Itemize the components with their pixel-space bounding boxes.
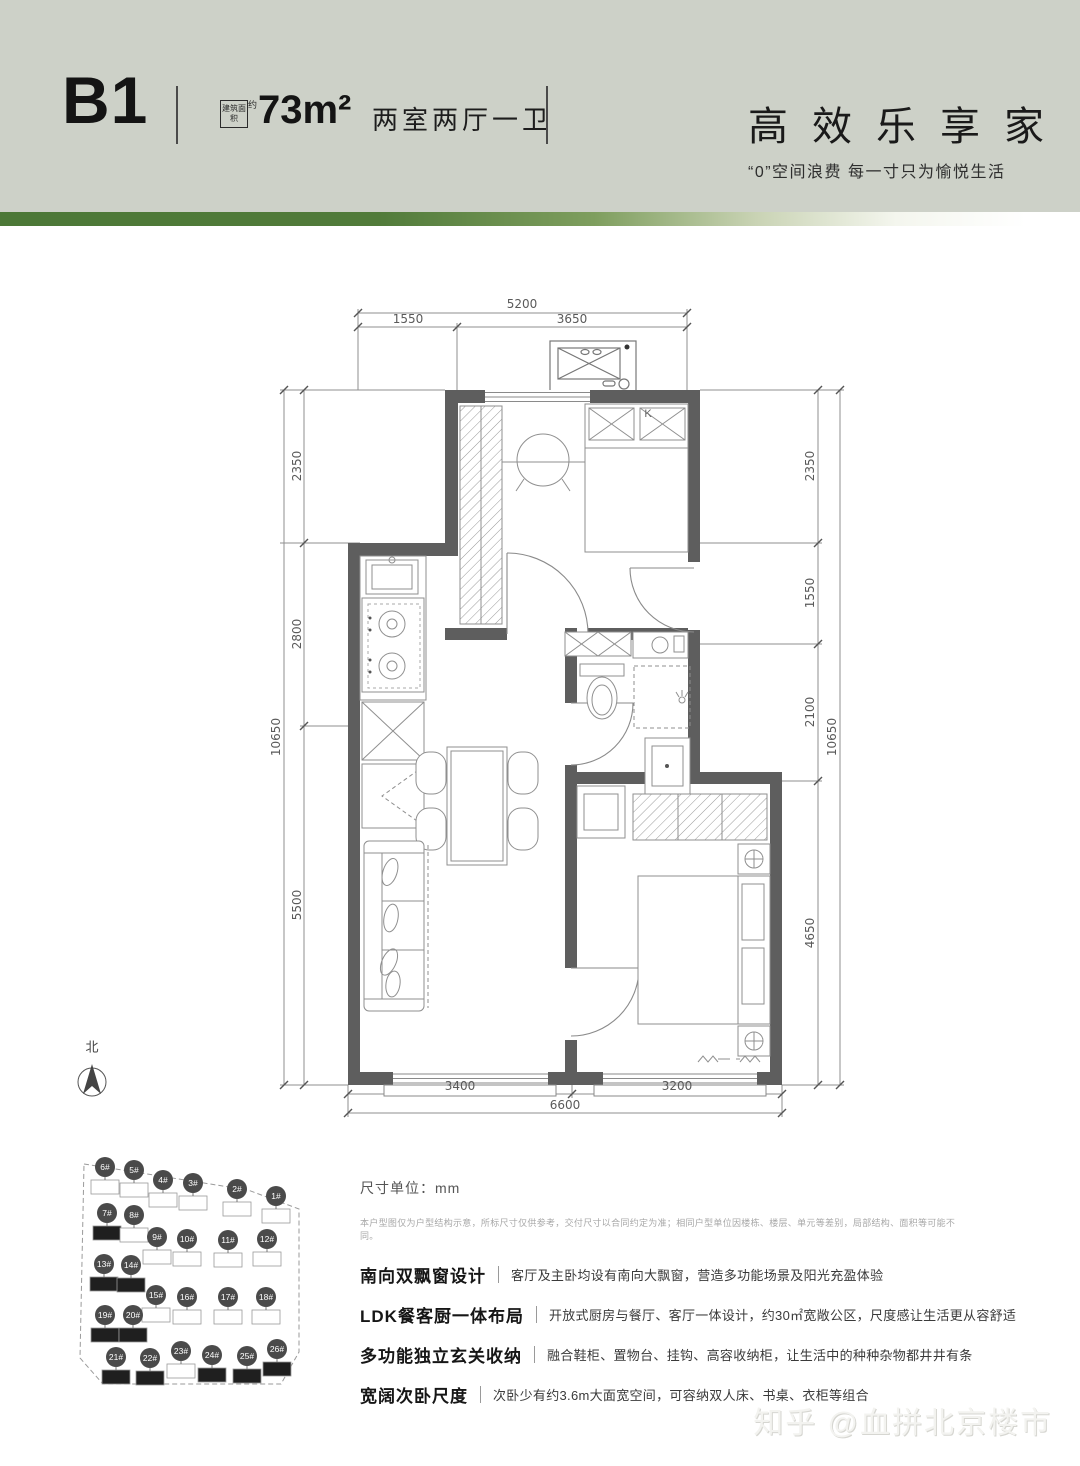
north-label: 北: [85, 1037, 98, 1056]
building-label: 11#: [221, 1235, 235, 1245]
ac-unit-label: K: [644, 408, 651, 420]
floor-plan-svg: 6#5#4#3#2#1#7#8#9#10#11#12#13#14#15#16#1…: [0, 0, 1080, 1466]
master-bedroom: [577, 786, 770, 1062]
building-footprint: [214, 1310, 242, 1324]
feature-desc: 客厅及主卧均设有南向大飘窗，营造多功能场景及阳光充盈体验: [511, 1265, 883, 1284]
feature-divider: [536, 1306, 537, 1323]
building-footprint: [102, 1370, 130, 1384]
page: { "header": { "unit_code": "B1", "area_t…: [0, 0, 1080, 1466]
unit-note: 尺寸单位：mm: [360, 1178, 460, 1198]
feature-divider: [480, 1386, 481, 1403]
disclaimer: 本户型图仅为户型结构示意，所标尺寸仅供参考，交付尺寸以合同约定为准；相同户型单位…: [360, 1216, 960, 1242]
dim-right-seg-2: 1550: [803, 578, 817, 609]
building-footprint: [262, 1209, 290, 1223]
dim-left-total: 10650: [269, 718, 283, 756]
dim-top-seg-1: 1550: [393, 312, 424, 326]
dim-top-total: 5200: [507, 297, 538, 311]
building-footprint: [119, 1328, 147, 1342]
feature-list: 南向双飘窗设计 客厅及主卧均设有南向大飘窗，营造多功能场景及阳光充盈体验 LDK…: [360, 1262, 1000, 1407]
site-plan: 6#5#4#3#2#1#7#8#9#10#11#12#13#14#15#16#1…: [80, 1157, 299, 1385]
building-label: 15#: [149, 1290, 163, 1300]
feature-divider: [534, 1346, 535, 1363]
bedroom2-furniture: [460, 404, 688, 624]
building-footprint: [173, 1252, 201, 1266]
building-footprint: [253, 1252, 281, 1266]
building-label: 1#: [271, 1191, 281, 1201]
feature-title: 南向双飘窗设计: [360, 1262, 486, 1287]
dim-right-seg-3: 2100: [803, 697, 817, 728]
building-label: 7#: [102, 1208, 112, 1218]
building-footprint: [90, 1277, 118, 1291]
building-footprint: [223, 1202, 251, 1216]
building-footprint: [91, 1328, 119, 1342]
building-label: 10#: [180, 1234, 194, 1244]
building-footprint: [179, 1196, 207, 1210]
dim-left-seg-3: 5500: [290, 890, 304, 921]
building-label: 8#: [129, 1210, 139, 1220]
building-label: 9#: [152, 1232, 162, 1242]
building-label: 14#: [124, 1260, 138, 1270]
building-label: 26#: [270, 1344, 284, 1354]
building-footprint: [173, 1310, 201, 1324]
ac-platform: [550, 341, 636, 391]
building-footprint: [91, 1180, 119, 1194]
building-label: 22#: [143, 1353, 157, 1363]
building-label: 18#: [259, 1292, 273, 1302]
building-label: 25#: [240, 1351, 254, 1361]
bathroom: [565, 632, 690, 794]
building-footprint: [117, 1278, 145, 1292]
building-footprint: [214, 1253, 242, 1267]
dim-bottom-seg-1: 3400: [445, 1079, 476, 1093]
building-label: 4#: [158, 1175, 168, 1185]
building-footprint: [263, 1362, 291, 1376]
feature-row: 多功能独立玄关收纳 融合鞋柜、置物台、挂钩、高容收纳柜，让生活中的种种杂物都井井…: [360, 1342, 1000, 1367]
feature-desc: 融合鞋柜、置物台、挂钩、高容收纳柜，让生活中的种种杂物都井井有条: [547, 1345, 973, 1364]
living-room: [364, 841, 428, 1011]
dim-right-total: 10650: [825, 718, 839, 756]
building-label: 23#: [174, 1346, 188, 1356]
dim-left-seg-2: 2800: [290, 619, 304, 650]
building-label: 2#: [232, 1184, 242, 1194]
dim-top-seg-2: 3650: [557, 312, 588, 326]
building-label: 19#: [98, 1310, 112, 1320]
building-footprint: [136, 1371, 164, 1385]
feature-divider: [498, 1266, 499, 1283]
building-footprint: [198, 1368, 226, 1382]
building-label: 24#: [205, 1350, 219, 1360]
feature-row: 南向双飘窗设计 客厅及主卧均设有南向大飘窗，营造多功能场景及阳光充盈体验: [360, 1262, 1000, 1287]
feature-row: LDK餐客厨一体布局 开放式厨房与餐厅、客厅一体设计，约30㎡宽敞公区，尺度感让…: [360, 1302, 1000, 1327]
north-arrow: [78, 1064, 106, 1096]
dining-set: [416, 747, 538, 865]
kitchen: [360, 556, 426, 828]
feature-title: 宽阔次卧尺度: [360, 1382, 468, 1407]
dim-right-seg-4: 4650: [803, 918, 817, 949]
building-label: 6#: [100, 1162, 110, 1172]
building-footprint: [120, 1228, 148, 1242]
dim-left-seg-1: 2350: [290, 451, 304, 482]
building-footprint: [120, 1183, 148, 1197]
building-label: 3#: [188, 1178, 198, 1188]
feature-title: LDK餐客厨一体布局: [360, 1302, 524, 1327]
building-label: 16#: [180, 1292, 194, 1302]
watermark: 知乎 @血拼北京楼市: [753, 1398, 1052, 1442]
building-footprint: [143, 1250, 171, 1264]
building-label: 12#: [260, 1234, 274, 1244]
building-footprint: [149, 1193, 177, 1207]
building-label: 13#: [97, 1259, 111, 1269]
dim-bottom-seg-2: 3200: [662, 1079, 693, 1093]
dim-bottom-total: 6600: [550, 1098, 581, 1112]
building-footprint: [93, 1226, 121, 1240]
building-footprint: [167, 1364, 195, 1378]
dim-right-seg-1: 2350: [803, 451, 817, 482]
building-footprint: [252, 1310, 280, 1324]
building-label: 17#: [221, 1292, 235, 1302]
site-buildings: 6#5#4#3#2#1#7#8#9#10#11#12#13#14#15#16#1…: [90, 1157, 291, 1385]
building-footprint: [142, 1308, 170, 1322]
building-label: 20#: [126, 1310, 140, 1320]
building-footprint: [233, 1369, 261, 1383]
building-label: 5#: [129, 1165, 139, 1175]
feature-title: 多功能独立玄关收纳: [360, 1342, 522, 1367]
building-label: 21#: [109, 1352, 123, 1362]
feature-desc: 开放式厨房与餐厅、客厅一体设计，约30㎡宽敞公区，尺度感让生活更从容舒适: [549, 1305, 1016, 1324]
